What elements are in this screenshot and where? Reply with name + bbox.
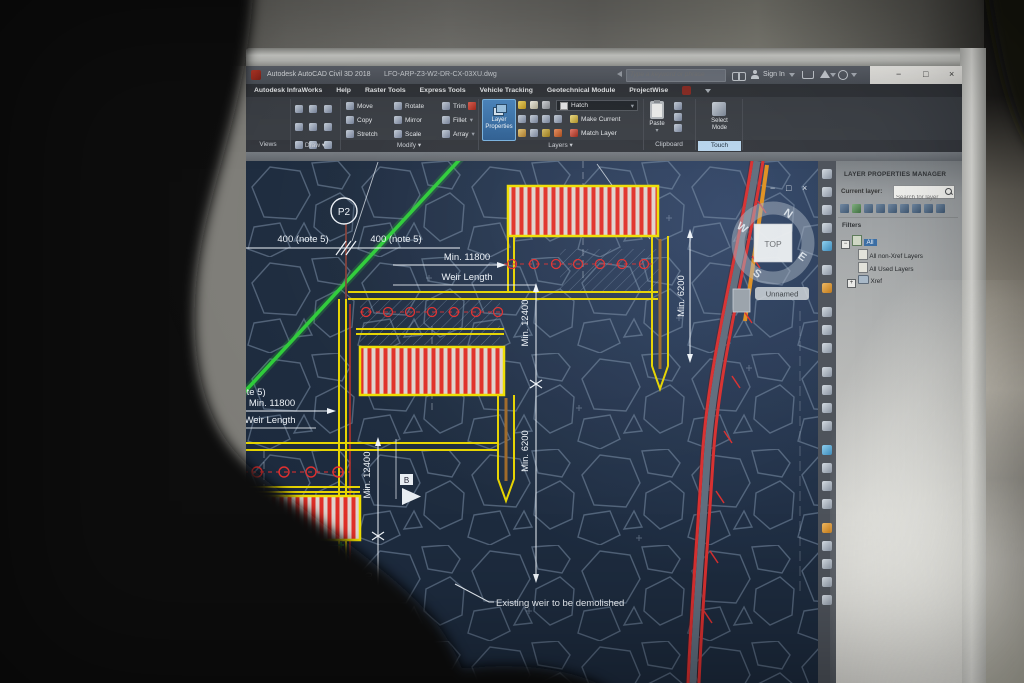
dim-min-6200: Min. 6200 <box>364 572 375 614</box>
move-icon <box>346 102 354 110</box>
collapse-icon[interactable]: − <box>841 240 850 249</box>
ribbon-divider <box>742 99 743 150</box>
dim-min-12400: Min. 12400 <box>362 451 373 498</box>
dim-weir-length: Weir Length <box>441 272 492 283</box>
app-store-cart-icon[interactable] <box>802 71 814 79</box>
tool-copy[interactable]: Copy <box>346 116 372 124</box>
set-current-icon[interactable] <box>912 204 921 213</box>
notification-caret-icon[interactable] <box>830 73 836 77</box>
layer-off-icon[interactable] <box>554 115 562 123</box>
refresh-icon[interactable] <box>924 204 933 213</box>
help-caret-icon[interactable] <box>851 73 857 77</box>
layer-delete-icon[interactable] <box>554 129 562 137</box>
sign-in-button[interactable]: Sign In <box>763 71 785 78</box>
menu-projectwise[interactable]: ProjectWise <box>629 87 668 94</box>
tool-array[interactable]: Array▾ <box>442 130 475 138</box>
cut-icon[interactable] <box>674 102 682 110</box>
close-button[interactable]: × <box>949 70 954 79</box>
p2-marker-label: P2 <box>338 207 351 218</box>
layer-state-icons <box>518 101 550 109</box>
nav-view-icon[interactable] <box>822 241 832 251</box>
new-group-filter-icon[interactable] <box>852 204 861 213</box>
array-icon <box>442 130 450 138</box>
arc-tool-icon[interactable] <box>309 105 317 113</box>
new-filter-icon[interactable] <box>840 204 849 213</box>
divider <box>838 217 958 218</box>
match-layer-label: Match Layer <box>581 130 617 137</box>
document-name: LFO-ARP-Z3-W2-DR-CX-03XU.dwg <box>384 71 497 78</box>
minimize-button[interactable]: − <box>896 70 901 79</box>
drawing-canvas[interactable]: P2 <box>246 161 818 683</box>
polyline-tool-icon[interactable] <box>324 105 332 113</box>
search-magnifier-icon <box>945 188 952 195</box>
match-layer-icon <box>570 129 578 137</box>
tool-label: Copy <box>357 117 372 124</box>
menu-help[interactable]: Help <box>336 87 351 94</box>
ellipse-tool-icon[interactable] <box>309 123 317 131</box>
panel-touch-label[interactable]: Touch <box>698 141 741 151</box>
view-tooltip: Unnamed <box>755 287 809 300</box>
keyword-search-input[interactable] <box>627 70 719 79</box>
menu-vehicle-tracking[interactable]: Vehicle Tracking <box>480 87 533 94</box>
panel-clipboard-label[interactable]: Clipboard <box>643 141 695 152</box>
settings-icon[interactable] <box>936 204 945 213</box>
palette-title: LAYER PROPERTIES MANAGER <box>844 171 946 178</box>
line-tool-icon[interactable] <box>295 105 303 113</box>
make-current-label: Make Current <box>581 116 620 123</box>
copy-icon <box>346 116 354 124</box>
layer-freeze-sun-icon[interactable] <box>530 101 538 109</box>
photo-overexposure-wash <box>830 280 1024 683</box>
layer-tools-row3-icons <box>518 129 562 137</box>
dim-min-6200: Min. 6200 <box>520 430 531 472</box>
panel-draw-label[interactable]: Draw ▾ <box>290 141 340 152</box>
layer-properties-button[interactable]: LayerProperties <box>482 99 516 141</box>
layer-search-box[interactable] <box>893 185 955 199</box>
nav-zoom-icon[interactable] <box>822 187 832 197</box>
tree-used-label: All Used Layers <box>869 266 913 273</box>
circle-tool-icon[interactable] <box>295 123 303 131</box>
viewcube-top-label: TOP <box>764 239 782 249</box>
nav-wheel-icon[interactable] <box>822 223 832 233</box>
tree-all-label: All <box>864 239 877 246</box>
dim-400-note5: 400 (note 5) <box>246 387 266 398</box>
scale-icon <box>394 130 402 138</box>
paste-button[interactable]: Paste ▾ <box>646 121 668 134</box>
layer-walk-icon[interactable] <box>518 129 526 137</box>
view-tooltip-label: Unnamed <box>766 290 799 299</box>
layer-properties-icon <box>493 104 505 114</box>
demolish-note-text: Existing weir to be demolished <box>496 598 624 609</box>
mirror-icon <box>394 116 402 124</box>
search-collapse-icon[interactable] <box>617 71 622 77</box>
fillet-caret-icon: ▾ <box>470 116 473 124</box>
window-controls: − □ × <box>870 66 962 84</box>
diagonal-hatch-region <box>360 299 500 345</box>
all-layers-icon <box>852 235 862 246</box>
layer-freeze2-icon[interactable] <box>542 115 550 123</box>
filters-label: Filters <box>842 222 861 229</box>
new-vp-layer-icon[interactable] <box>888 204 897 213</box>
tool-fillet[interactable]: Fillet▾ <box>442 116 473 124</box>
monitor-bezel-top <box>246 48 986 66</box>
tool-label: Move <box>357 103 373 110</box>
tree-item-used[interactable]: All Used Layers <box>858 262 914 273</box>
select-mode-icon <box>712 102 726 116</box>
make-current-button[interactable]: Make Current <box>570 115 620 123</box>
match-layer-button[interactable]: Match Layer <box>570 129 617 137</box>
rectangle-tool-icon[interactable] <box>324 123 332 131</box>
dim-min-11800: Min. 11800 <box>249 398 295 409</box>
paste-icon <box>650 101 664 119</box>
a360-caret-icon[interactable] <box>705 89 711 93</box>
autocad-logo-icon[interactable] <box>251 70 261 80</box>
tool-label: Stretch <box>357 131 378 138</box>
layer-undo-icon[interactable] <box>518 115 526 123</box>
tool-label: Trim <box>453 103 466 110</box>
layer-filter-icon <box>858 249 868 260</box>
app-title-bar: Autodesk AutoCAD Civil 3D 2018 LFO-ARP-Z… <box>246 66 962 84</box>
measure-icon[interactable] <box>468 102 476 110</box>
selection-grip[interactable] <box>733 289 750 312</box>
nav-pan-icon[interactable] <box>822 169 832 179</box>
trim-icon <box>442 102 450 110</box>
current-layer-value: Hatch <box>571 102 588 109</box>
current-layer-label: Current layer: <box>841 188 882 195</box>
array-caret-icon: ▾ <box>472 130 475 138</box>
layer-color-swatch <box>560 102 568 110</box>
make-current-icon <box>570 115 578 123</box>
tree-item-all[interactable]: − All <box>841 235 877 249</box>
ribbon: Views Draw ▾ Move Copy Stretch Rotate Mi… <box>246 97 962 152</box>
tool-label: Mirror <box>405 117 422 124</box>
clipboard-extra-icons <box>674 102 682 135</box>
doc-minimize-button[interactable]: − <box>770 183 775 193</box>
layer-on-bulb-icon[interactable] <box>518 101 526 109</box>
help-icon[interactable] <box>838 70 848 80</box>
paste-special-icon[interactable] <box>674 124 682 132</box>
ribbon-divider <box>695 99 696 150</box>
doc-close-button[interactable]: × <box>802 183 807 193</box>
signin-caret-icon[interactable] <box>789 73 795 77</box>
tree-non-xref-label: All non-Xref Layers <box>869 253 923 260</box>
fillet-icon <box>442 116 450 124</box>
tool-flag-icon[interactable] <box>822 265 832 275</box>
menu-raster-tools[interactable]: Raster Tools <box>365 87 406 94</box>
copy-clip-icon[interactable] <box>674 113 682 121</box>
a360-icon[interactable] <box>682 86 691 95</box>
menu-infraworks[interactable]: Autodesk InfraWorks <box>254 87 322 94</box>
tool-label: Rotate <box>405 103 424 110</box>
photo-of-monitor: Autodesk AutoCAD Civil 3D 2018 LFO-ARP-Z… <box>0 0 1024 683</box>
dim-min-11800: Min. 11800 <box>444 252 490 263</box>
diagonal-hatch-region <box>560 249 660 291</box>
layer-lock2-icon[interactable] <box>530 129 538 137</box>
tool-rotate[interactable]: Rotate <box>394 102 424 110</box>
dim-weir-length: Weir Length <box>246 415 296 426</box>
tool-label: Fillet <box>453 117 467 124</box>
delete-layer-icon[interactable] <box>900 204 909 213</box>
user-account-icon[interactable] <box>751 70 759 79</box>
keyword-search-box[interactable] <box>626 69 726 82</box>
tool-scale[interactable]: Scale <box>394 130 421 138</box>
paste-label: Paste <box>649 121 664 127</box>
palette-toolbar <box>840 204 945 213</box>
layer-dropdown-caret-icon: ▾ <box>631 102 634 110</box>
layer-filter-icon <box>858 262 868 273</box>
layer-tools-row2-icons <box>518 115 562 123</box>
nav-orbit-icon[interactable] <box>822 205 832 215</box>
layer-search-input[interactable] <box>894 193 944 203</box>
panel-modify-label[interactable]: Modify ▾ <box>340 141 478 152</box>
panel-views-label[interactable]: Views <box>246 141 290 152</box>
layer-isolate-icon[interactable] <box>530 115 538 123</box>
tool-move[interactable]: Move <box>346 102 373 110</box>
rotate-icon <box>394 102 402 110</box>
new-layer-icon[interactable] <box>876 204 885 213</box>
maximize-button[interactable]: □ <box>923 70 928 79</box>
tool-label: Scale <box>405 131 421 138</box>
tree-item-non-xref[interactable]: All non-Xref Layers <box>858 249 923 260</box>
menu-express-tools[interactable]: Express Tools <box>420 87 466 94</box>
notification-icon[interactable] <box>820 70 830 78</box>
panel-layers-label[interactable]: Layers ▾ <box>478 141 643 152</box>
layer-properties-label: LayerProperties <box>483 117 515 131</box>
dim-400-note5: 400 (note 5) <box>370 234 421 245</box>
menu-geotechnical[interactable]: Geotechnical Module <box>547 87 615 94</box>
layer-dropdown[interactable]: Hatch ▾ <box>556 100 638 111</box>
app-title: Autodesk AutoCAD Civil 3D 2018 <box>267 71 371 78</box>
select-mode-button[interactable]: SelectMode <box>698 118 741 132</box>
section-b-label: B <box>404 476 409 485</box>
search-binoculars-icon[interactable] <box>732 72 744 79</box>
file-tab-strip[interactable] <box>246 152 962 161</box>
dim-min-12400: Min. 12400 <box>520 299 531 346</box>
paste-caret-icon: ▾ <box>655 128 658 134</box>
tool-mirror[interactable]: Mirror <box>394 116 422 124</box>
tool-stretch[interactable]: Stretch <box>346 130 378 138</box>
doc-restore-button[interactable]: □ <box>786 183 792 193</box>
dim-min-6200: Min. 6200 <box>676 275 687 317</box>
tool-label: Array <box>453 131 469 138</box>
layer-merge-icon[interactable] <box>542 129 550 137</box>
layer-lock-icon[interactable] <box>542 101 550 109</box>
dim-400-note5: 400 (note 5) <box>277 234 328 245</box>
stretch-icon <box>346 130 354 138</box>
menu-bar: Autodesk InfraWorks Help Raster Tools Ex… <box>246 84 962 97</box>
layer-states-icon[interactable] <box>864 204 873 213</box>
